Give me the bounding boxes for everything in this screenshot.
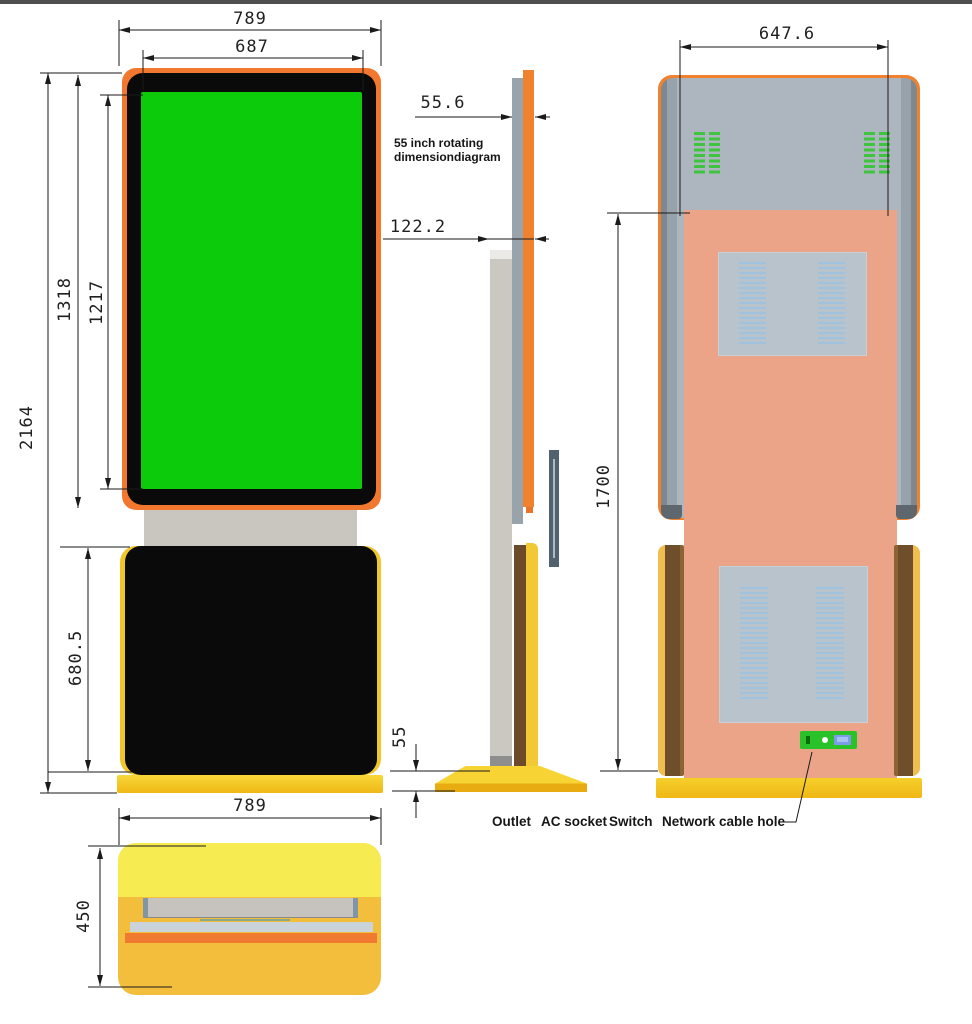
network-port-inner [837,737,848,742]
side-screen-orange-layer [523,70,534,507]
vent-slats [740,587,768,700]
dim-side-screen-thickness: 55.6 [408,94,478,112]
switch-dot [822,737,828,743]
side-base-trapezoid [435,764,587,792]
back-green-vent-right [864,132,890,176]
callout-ac-socket: AC socket [541,814,607,829]
back-shell-bottom-cap-left [661,505,682,519]
bottom-orange-strip [125,933,377,943]
top-border-bar [0,0,972,4]
front-green-screen [141,92,362,489]
dim-front-screen-visible-height: 1217 [88,281,106,325]
back-upper-vent-plate [718,252,867,356]
bottom-view [118,843,381,995]
dim-back-width: 647.6 [747,25,827,43]
diagram-title-line2: dimensiondiagram [394,150,501,164]
network-port [834,735,851,745]
front-cabinet-black [125,546,377,775]
side-screen-nub [526,507,533,513]
back-cabinet-side-left [658,545,684,776]
callout-switch: Switch [609,814,653,829]
back-connector-panel [800,731,857,749]
front-base-strip [117,775,383,793]
vent-dash-column [879,132,890,176]
vent-slats [816,587,844,700]
dim-bottom-base-width: 789 [210,797,290,815]
side-cabinet-yellow [526,543,538,770]
back-cabinet-side-right [894,545,920,776]
front-connector-column [144,510,357,546]
vent-slats [818,262,845,346]
back-shell-bottom-cap-right [896,505,917,519]
bottom-light-yellow-band [118,843,381,897]
dim-bottom-base-depth: 450 [75,899,93,933]
dim-back-body-height: 1700 [595,465,613,509]
vent-slats [739,262,766,346]
dim-front-overall-width: 789 [210,10,290,28]
back-base-strip [656,778,922,798]
dim-front-overall-height: 2164 [18,406,36,450]
outlet-hole [806,736,810,744]
dim-front-screen-frame-height: 1318 [56,278,74,322]
callout-network-cable-hole: Network cable hole [662,814,785,829]
back-green-vent-left [694,132,720,176]
diagram-title: 55 inch rotating dimensiondiagram [394,136,501,164]
diagram-title-line1: 55 inch rotating [394,136,501,150]
vent-dash-column [864,132,875,176]
back-lower-vent-plate [719,566,868,723]
side-screen-back-layer [512,78,523,524]
bottom-seam-line [200,919,290,921]
callout-outlet: Outlet [492,814,531,829]
side-support-column [490,250,512,772]
side-bracket-highlight [553,459,555,558]
dim-side-base-height: 55 [391,726,409,748]
bottom-gray-strip [130,922,373,932]
dim-side-depth: 122.2 [380,218,456,236]
vent-dash-column [694,132,705,176]
side-cabinet-brown-face [514,545,526,767]
dim-front-screen-width: 687 [212,38,292,56]
dim-front-cabinet-height: 680.5 [67,630,85,686]
bottom-column-cross-section [143,898,358,918]
vent-dash-column [709,132,720,176]
dimension-diagram: 789 687 2164 1318 1217 680.5 789 450 55.… [0,0,972,1024]
